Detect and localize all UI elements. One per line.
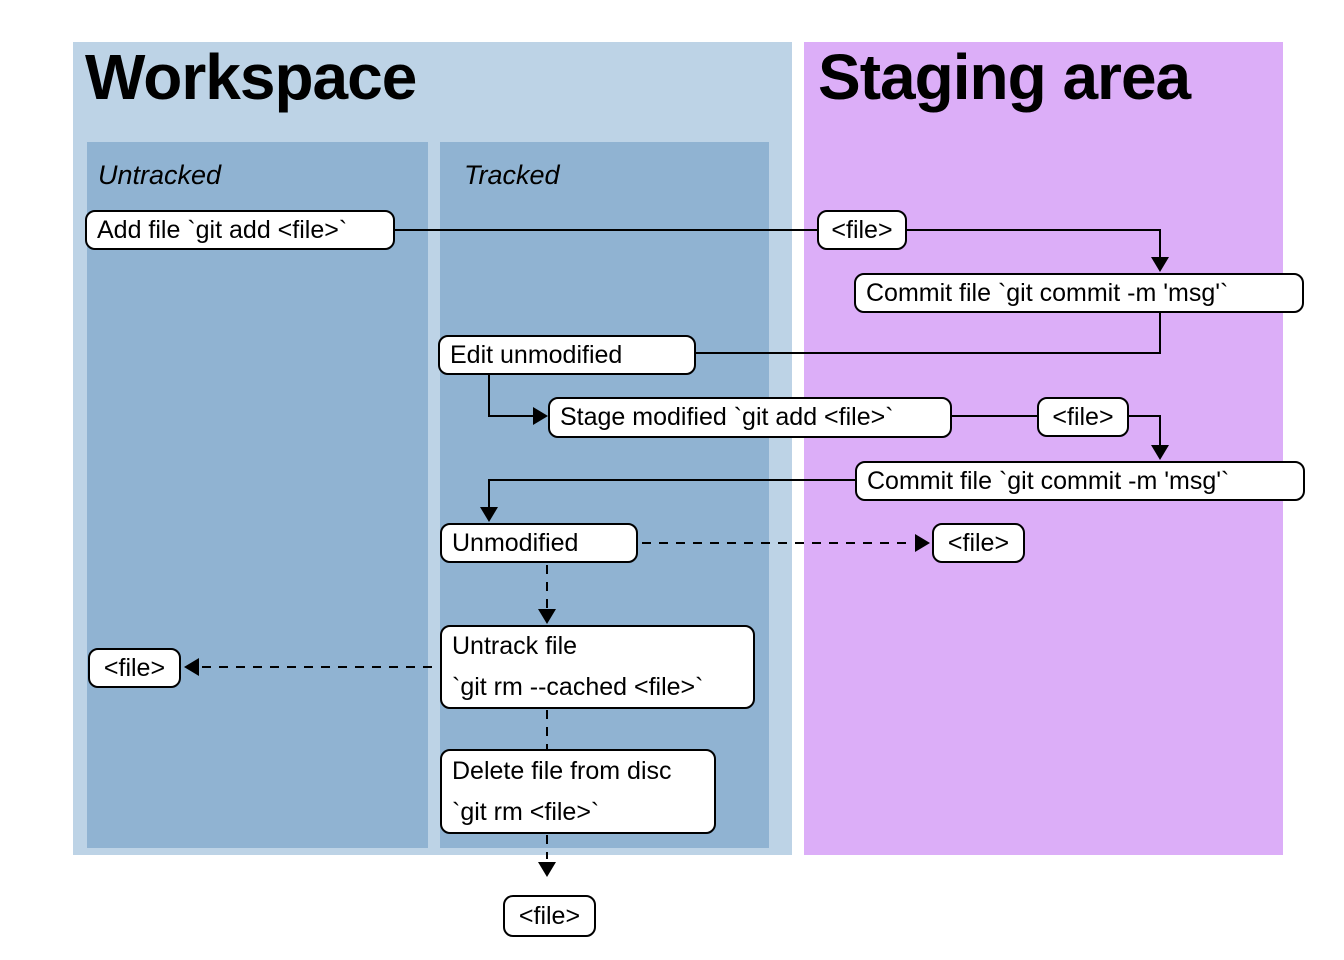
dashed-unmodified-to-untrack bbox=[546, 565, 548, 610]
node-file-staging-top: <file> bbox=[817, 210, 907, 250]
arrowhead-into-untrack-file bbox=[538, 609, 556, 624]
staging-panel bbox=[804, 42, 1283, 855]
connector-addfile-to-file bbox=[395, 229, 817, 231]
node-commit-file-2: Commit file `git commit -m 'msg'` bbox=[855, 461, 1305, 501]
node-unmodified: Unmodified bbox=[440, 523, 638, 563]
arrowhead-into-unmodified bbox=[480, 507, 498, 522]
node-file-untracked: <file> bbox=[88, 648, 181, 688]
delete-file-line2: `git rm <file>` bbox=[452, 792, 599, 833]
connector-commit1-to-edit-h bbox=[694, 352, 1161, 354]
connector-commit1-to-edit-v bbox=[1159, 313, 1161, 354]
connector-file-to-commit1-v bbox=[1159, 229, 1161, 259]
node-file-staging-mid: <file> bbox=[1037, 397, 1129, 437]
arrowhead-into-commit2 bbox=[1151, 445, 1169, 460]
dashed-delete-to-file bbox=[546, 835, 548, 859]
node-stage-modified: Stage modified `git add <file>` bbox=[548, 397, 952, 438]
tracked-label: Tracked bbox=[464, 160, 560, 191]
node-delete-file: Delete file from disc `git rm <file>` bbox=[440, 749, 716, 834]
connector-stage-to-file bbox=[950, 415, 1038, 417]
dashed-unmodified-to-staged-file bbox=[642, 542, 912, 544]
connector-commit2-to-unmodified-v bbox=[488, 479, 490, 508]
connector-file-to-commit2-v bbox=[1159, 415, 1161, 446]
arrowhead-into-deleted-file bbox=[538, 862, 556, 877]
node-untrack-file: Untrack file `git rm --cached <file>` bbox=[440, 625, 755, 709]
arrowhead-into-stage-modified bbox=[533, 407, 548, 425]
node-commit-file-1: Commit file `git commit -m 'msg'` bbox=[854, 273, 1304, 313]
node-add-file: Add file `git add <file>` bbox=[85, 210, 395, 250]
node-file-staged: <file> bbox=[932, 523, 1025, 563]
connector-file-to-commit2-h bbox=[1126, 415, 1161, 417]
dashed-untrack-to-delete bbox=[546, 710, 548, 749]
delete-file-line1: Delete file from disc bbox=[452, 751, 672, 792]
node-edit-unmodified: Edit unmodified bbox=[438, 335, 696, 375]
connector-commit2-to-unmodified-h bbox=[488, 479, 856, 481]
arrowhead-into-staged-file bbox=[915, 534, 930, 552]
node-file-deleted: <file> bbox=[503, 895, 596, 937]
untracked-label: Untracked bbox=[98, 160, 221, 191]
staging-title: Staging area bbox=[818, 40, 1190, 114]
untrack-file-line2: `git rm --cached <file>` bbox=[452, 667, 703, 708]
connector-edit-to-stage-v bbox=[488, 374, 490, 417]
arrowhead-into-untracked-file bbox=[184, 658, 199, 676]
untrack-file-line1: Untrack file bbox=[452, 626, 577, 667]
git-lifecycle-diagram: Workspace Staging area Untracked Tracked… bbox=[0, 0, 1344, 960]
connector-edit-to-stage-h bbox=[488, 415, 533, 417]
arrowhead-into-commit1 bbox=[1151, 257, 1169, 272]
workspace-title: Workspace bbox=[85, 40, 416, 114]
connector-file-to-commit1-h bbox=[905, 229, 1161, 231]
dashed-untrack-to-file bbox=[202, 666, 440, 668]
